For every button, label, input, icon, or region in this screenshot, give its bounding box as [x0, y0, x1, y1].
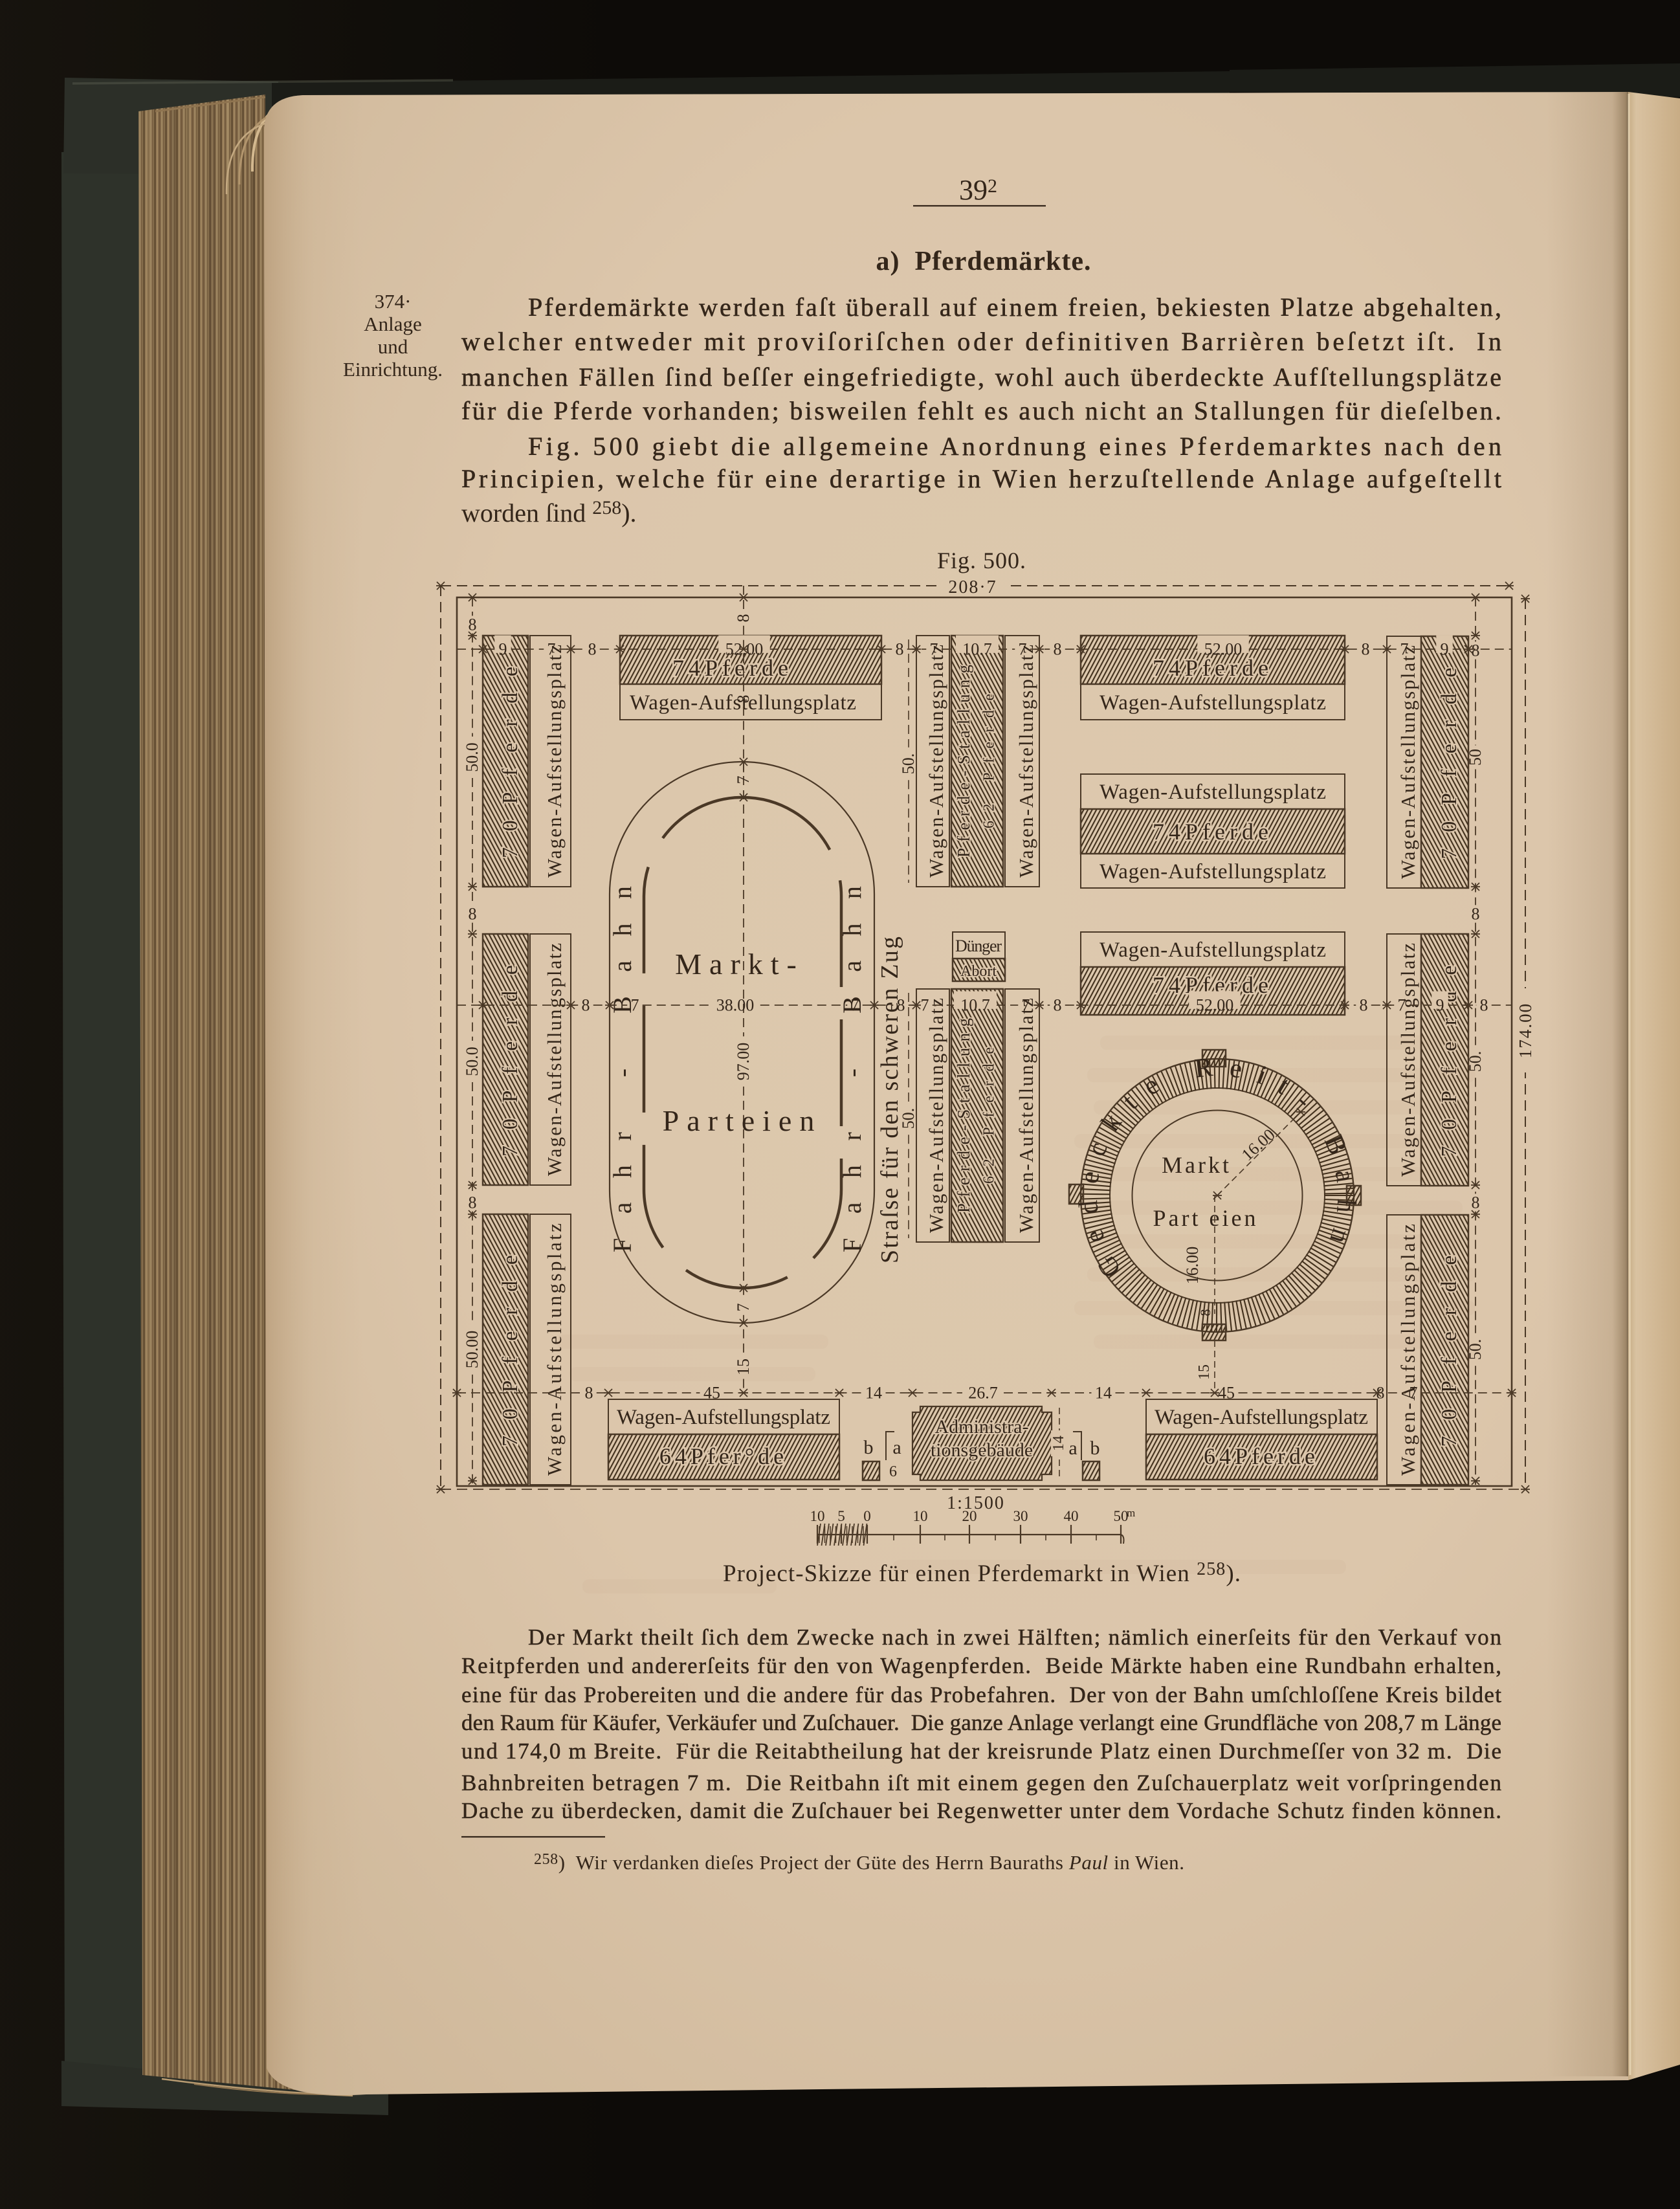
svg-text:8: 8 — [1054, 995, 1062, 1014]
svg-text:7: 7 — [631, 995, 639, 1014]
svg-text:14: 14 — [1050, 1436, 1067, 1451]
svg-text:52.00: 52.00 — [1196, 995, 1234, 1014]
svg-text:62 Pferde: 62 Pferde — [981, 694, 998, 828]
svg-text:64Pfer°de: 64Pfer°de — [659, 1443, 788, 1469]
svg-text:Wagen-Aufstellungsplatz: Wagen-Aufstellungsplatz — [1015, 645, 1037, 878]
svg-text:7: 7 — [734, 776, 753, 784]
svg-text:Project-Skizze für einen Pferd: Project-Skizze für einen Pferdemarkt in … — [723, 1559, 1241, 1587]
svg-text:14: 14 — [865, 1383, 882, 1402]
svg-text:Markt-: Markt- — [675, 948, 804, 981]
svg-text:6: 6 — [889, 1463, 897, 1480]
svg-text:8: 8 — [469, 1193, 477, 1212]
svg-text:Wagen-Aufstellungsplatz: Wagen-Aufstellungsplatz — [1397, 1224, 1419, 1476]
svg-text:0: 0 — [863, 1508, 871, 1524]
svg-text:8: 8 — [1480, 995, 1488, 1014]
svg-text:8: 8 — [897, 995, 905, 1014]
svg-text:Wagen-Aufstellungsplatz: Wagen-Aufstellungsplatz — [1397, 645, 1419, 879]
svg-text:62 Pferde: 62 Pferde — [981, 1047, 998, 1184]
svg-text:8: 8 — [734, 614, 753, 623]
svg-text:7: 7 — [921, 995, 929, 1014]
svg-text:b: b — [1090, 1438, 1100, 1459]
svg-text:8: 8 — [469, 904, 477, 923]
svg-text:Abort: Abort — [960, 963, 997, 980]
svg-text:9: 9 — [1441, 639, 1449, 658]
svg-text:74Pferde: 74Pferde — [1153, 819, 1273, 845]
svg-text:Pferdemärkte werden faſt übera: Pferdemärkte werden faſt überall auf ein… — [528, 293, 1501, 322]
svg-text:7: 7 — [1022, 995, 1030, 1014]
svg-text:7: 7 — [547, 639, 556, 658]
svg-text:74Pferde: 74Pferde — [672, 655, 793, 681]
svg-text:64Pferde: 64Pferde — [1204, 1443, 1319, 1469]
svg-text:Fig. 500.: Fig. 500. — [937, 548, 1026, 573]
svg-text:50.00: 50.00 — [463, 1331, 481, 1369]
svg-text:a: a — [1068, 1438, 1077, 1459]
svg-text:10: 10 — [913, 1508, 928, 1524]
svg-text:Wagen-Aufstellungsplatz: Wagen-Aufstellungsplatz — [1100, 938, 1326, 962]
svg-text:50.0: 50.0 — [463, 1047, 481, 1076]
svg-text:7: 7 — [1398, 995, 1406, 1014]
svg-text:7: 7 — [1019, 639, 1027, 658]
svg-text:m: m — [1127, 1507, 1135, 1519]
svg-text:8: 8 — [734, 695, 753, 704]
svg-text:7: 7 — [851, 995, 859, 1014]
svg-text:52.00: 52.00 — [1204, 639, 1243, 658]
svg-text:Wagen-Aufstellungsplatz: Wagen-Aufstellungsplatz — [1100, 781, 1326, 804]
svg-text:Dünger: Dünger — [955, 937, 1002, 955]
svg-text:Fahr - Bahn: Fahr - Bahn — [837, 877, 867, 1252]
svg-text:8: 8 — [469, 615, 477, 634]
svg-text:den Raum für Käufer, Verkäufer: den Raum für Käufer, Verkäufer und Zuſch… — [461, 1710, 1501, 1735]
svg-text:26.7: 26.7 — [968, 1383, 998, 1402]
svg-text:38.00: 38.00 — [716, 995, 755, 1014]
svg-text:174.00: 174.00 — [1516, 1003, 1535, 1058]
svg-text:Fig. 500 giebt die allgemeine: Fig. 500 giebt die allgemeine Anordnung … — [528, 432, 1501, 461]
svg-text:15: 15 — [1196, 1364, 1213, 1380]
svg-text:8: 8 — [1472, 1193, 1480, 1212]
svg-text:b: b — [864, 1437, 874, 1458]
svg-text:8: 8 — [1362, 639, 1370, 658]
svg-text:50: 50 — [1466, 749, 1485, 766]
svg-text:50.: 50. — [899, 753, 918, 775]
svg-text:8: 8 — [1360, 995, 1368, 1014]
svg-text:45: 45 — [703, 1383, 720, 1402]
svg-text:Wagen-Aufstellungsplatz: Wagen-Aufstellungsplatz — [925, 645, 947, 878]
svg-text:7: 7 — [1409, 1383, 1418, 1402]
svg-text:208·7: 208·7 — [948, 577, 997, 597]
svg-text:a) Pferdemärkte.: a) Pferdemärkte. — [876, 247, 1091, 276]
svg-text:Wagen-Aufstellungsplatz: Wagen-Aufstellungsplatz — [543, 943, 566, 1176]
svg-text:und 174,0 m Breite. Für die R: und 174,0 m Breite. Für die Reitabtheilu… — [461, 1738, 1501, 1764]
svg-text:für die Pferde vorhanden; bisw: für die Pferde vorhanden; bisweilen fehl… — [461, 396, 1501, 425]
svg-text:8: 8 — [1472, 904, 1480, 923]
svg-text:10.7: 10.7 — [960, 995, 990, 1014]
svg-text:10: 10 — [810, 1508, 825, 1524]
svg-text:7: 7 — [1400, 639, 1409, 658]
svg-text:30: 30 — [1013, 1508, 1028, 1524]
svg-text:Straſse für den schweren Zug: Straſse für den schweren Zug — [876, 937, 903, 1263]
svg-text:Fahr - Bahn: Fahr - Bahn — [608, 877, 637, 1252]
svg-text:Wagen-Aufstellungsplatz: Wagen-Aufstellungsplatz — [543, 645, 566, 878]
svg-text:8: 8 — [588, 639, 597, 658]
svg-text:Bahnbreiten betragen 7 m. Die: Bahnbreiten betragen 7 m. Die Reitbahn i… — [461, 1770, 1501, 1795]
svg-text:45: 45 — [1218, 1383, 1235, 1402]
svg-text:Anlage: Anlage — [364, 313, 422, 335]
svg-text:9: 9 — [1436, 995, 1444, 1014]
svg-text:Parteien: Parteien — [663, 1104, 823, 1137]
svg-text:40: 40 — [1064, 1508, 1079, 1524]
svg-text:Wagen-Aufstellungsplatz: Wagen-Aufstellungsplatz — [1015, 998, 1037, 1233]
svg-text:7: 7 — [734, 1304, 753, 1312]
svg-text:Wagen-Aufstellungsplatz: Wagen-Aufstellungsplatz — [925, 998, 947, 1233]
svg-text:8: 8 — [585, 1383, 593, 1402]
svg-text:eine für das Probereiten und d: eine für das Probereiten und die andere … — [461, 1682, 1501, 1707]
svg-text:Wagen-Aufstellungsplatz: Wagen-Aufstellungsplatz — [617, 1406, 830, 1429]
svg-text:20: 20 — [962, 1508, 977, 1524]
svg-text:tionsgebäude: tionsgebäude — [931, 1439, 1033, 1461]
svg-text:a: a — [892, 1437, 901, 1458]
svg-text:Administra-: Administra- — [935, 1416, 1029, 1438]
svg-text:10.7: 10.7 — [962, 639, 992, 658]
svg-text:Wagen-Aufstellungsplatz: Wagen-Aufstellungsplatz — [1100, 860, 1326, 883]
svg-text:8: 8 — [896, 639, 904, 658]
svg-text:9: 9 — [499, 639, 507, 658]
svg-text:und: und — [378, 335, 408, 358]
svg-text:50.0: 50.0 — [463, 742, 481, 772]
svg-text:258) Wir verdanken dieſes Pro: 258) Wir verdanken dieſes Project der Gü… — [534, 1851, 1184, 1874]
svg-text:8: 8 — [1472, 641, 1480, 660]
svg-text:Der Markt theilt ſich dem Zwec: Der Markt theilt ſich dem Zwecke nach in… — [528, 1625, 1501, 1650]
svg-text:7: 7 — [930, 639, 938, 658]
svg-text:8: 8 — [582, 995, 590, 1014]
svg-text:97.00: 97.00 — [734, 1043, 753, 1081]
svg-text:Wagen-Aufstellungsplatz: Wagen-Aufstellungsplatz — [1100, 691, 1326, 715]
svg-text:14: 14 — [1095, 1383, 1112, 1402]
svg-text:50.: 50. — [1466, 1339, 1485, 1360]
svg-text:74Pferde: 74Pferde — [1153, 655, 1273, 681]
svg-text:8: 8 — [1054, 639, 1062, 658]
svg-text:5: 5 — [837, 1508, 845, 1524]
svg-text:374·: 374· — [375, 290, 412, 313]
svg-text:Wagen-Aufstellungsplatz: Wagen-Aufstellungsplatz — [1155, 1406, 1368, 1429]
svg-text:Einrichtung.: Einrichtung. — [343, 358, 443, 381]
